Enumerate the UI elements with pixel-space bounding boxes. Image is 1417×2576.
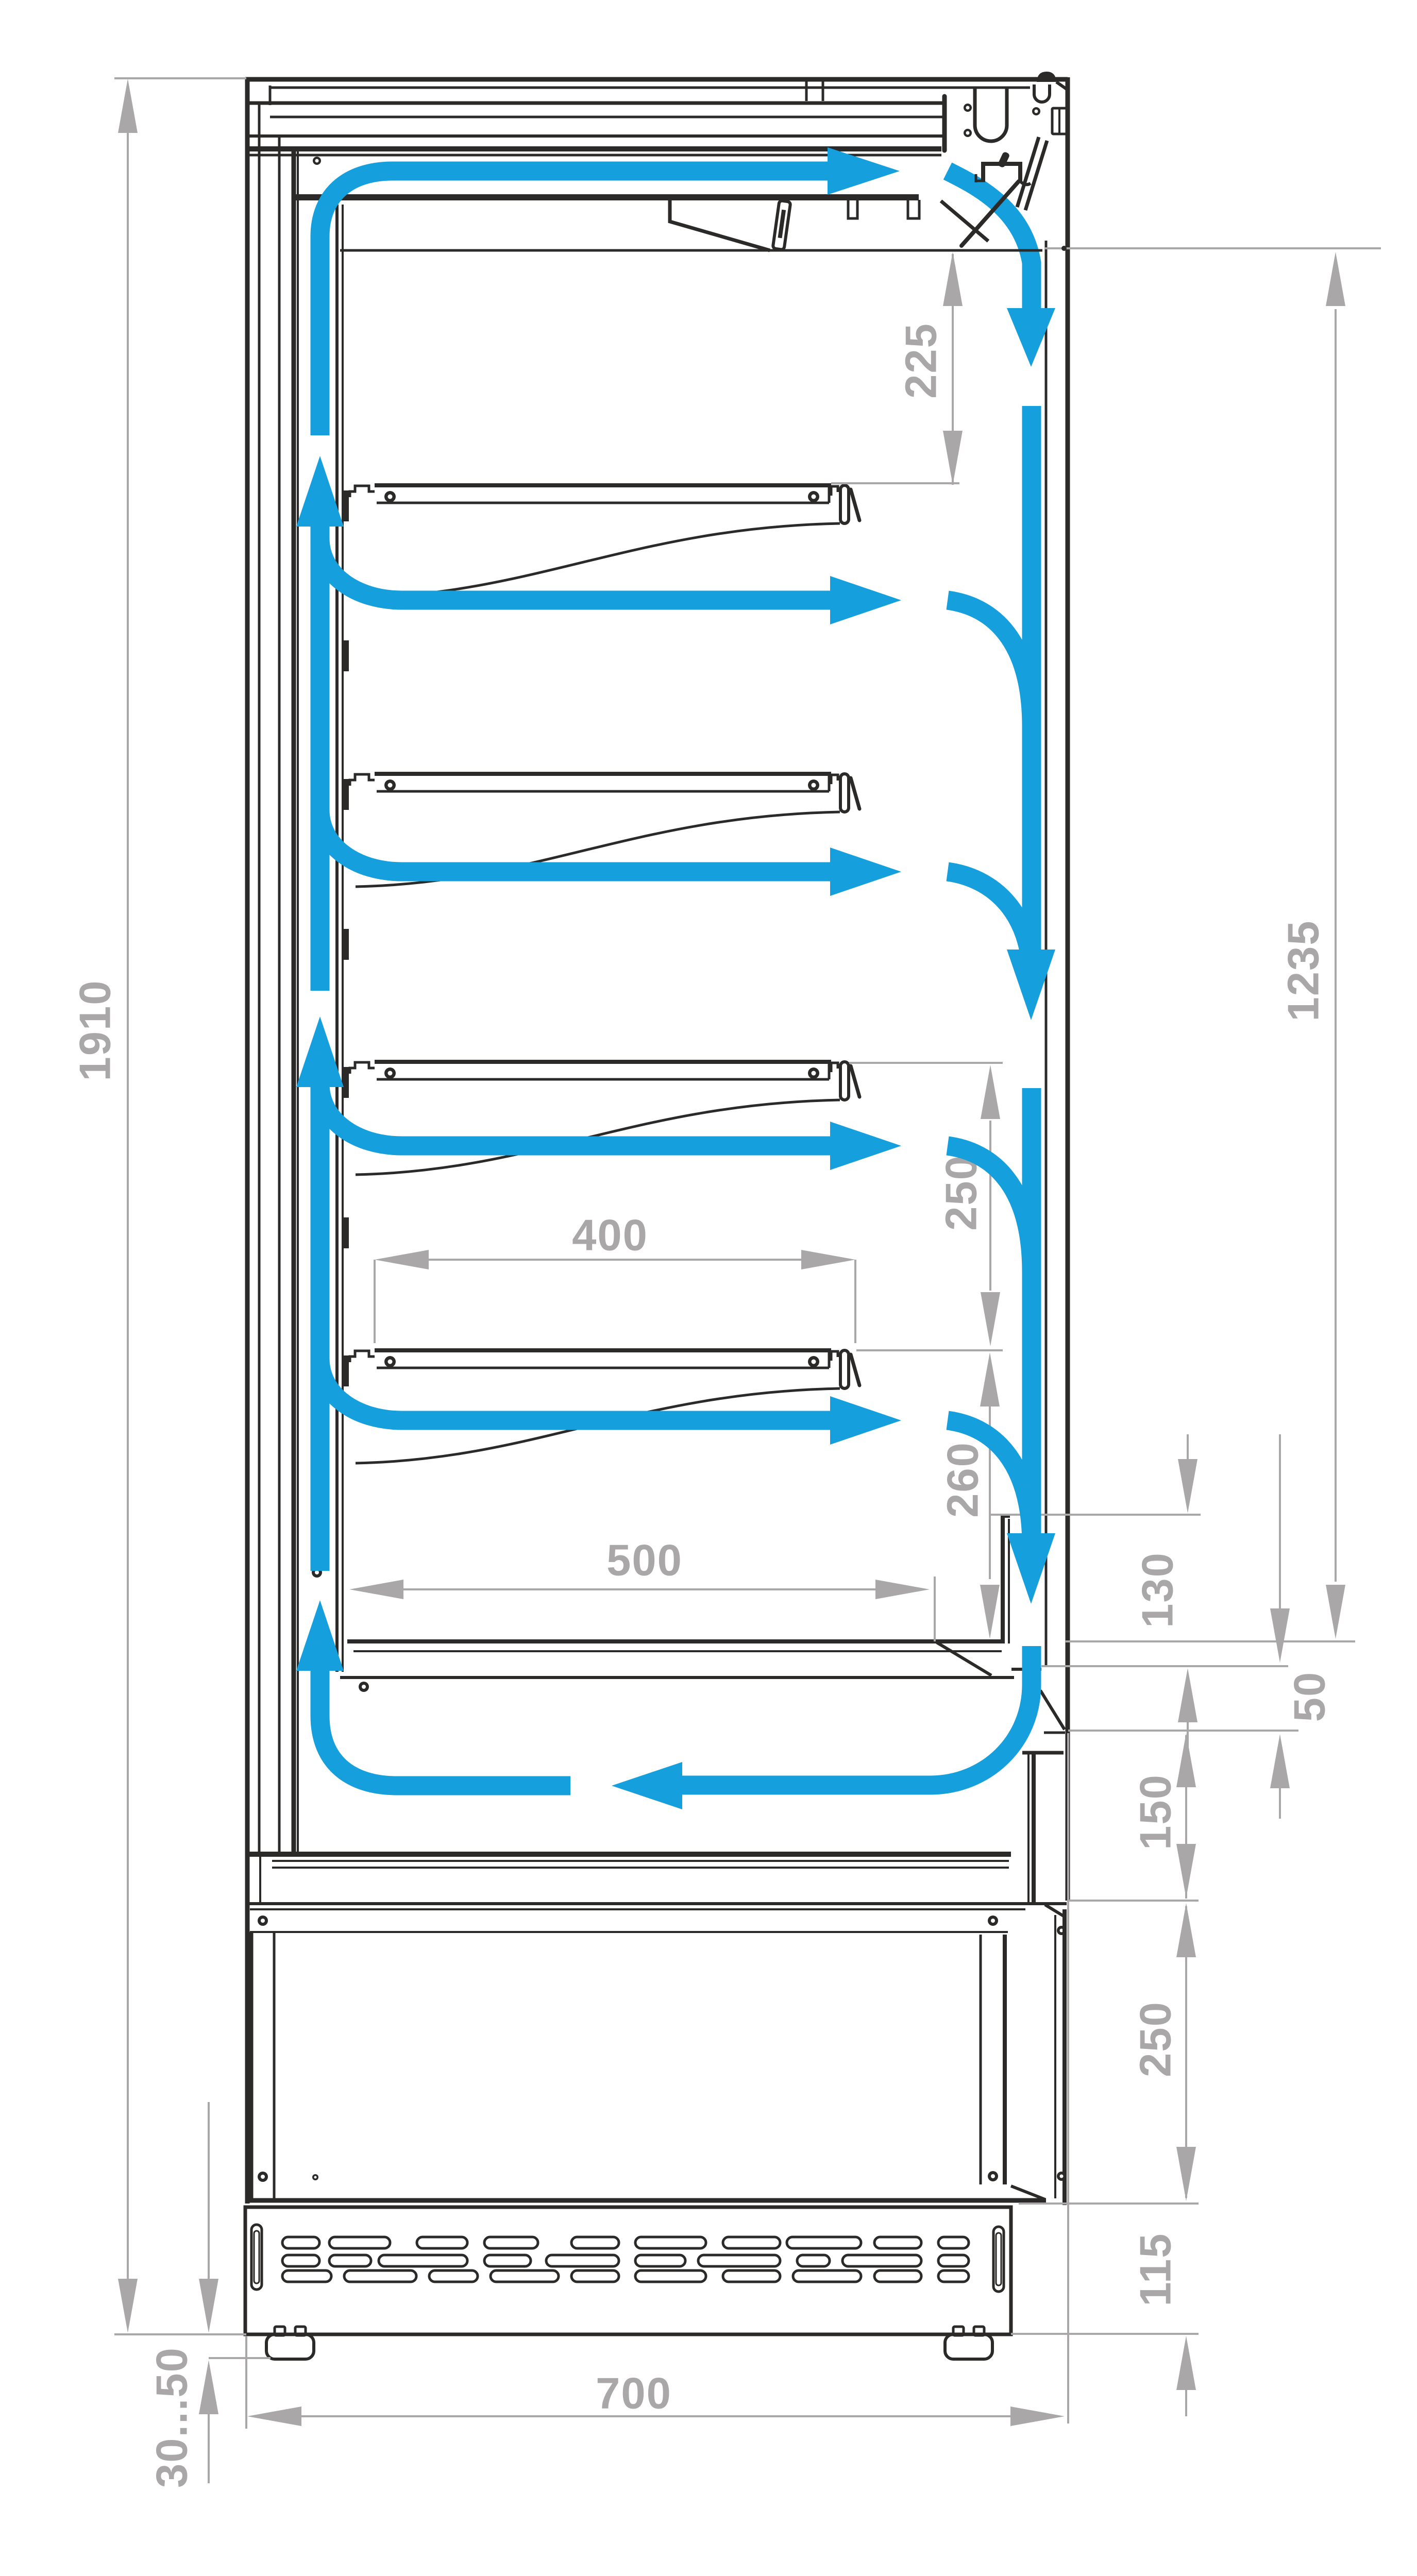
svg-text:1235: 1235 [1279, 920, 1328, 1021]
svg-text:225: 225 [897, 323, 946, 399]
svg-text:115: 115 [1132, 2232, 1180, 2306]
svg-text:130: 130 [1134, 1552, 1183, 1628]
svg-text:30...50: 30...50 [148, 2347, 197, 2488]
svg-text:1910: 1910 [71, 979, 120, 1081]
svg-text:250: 250 [1132, 2001, 1180, 2077]
svg-text:400: 400 [572, 1211, 648, 1260]
svg-text:500: 500 [606, 1536, 683, 1585]
svg-text:150: 150 [1132, 1774, 1180, 1850]
svg-text:50: 50 [1286, 1671, 1335, 1722]
svg-text:700: 700 [596, 2369, 672, 2418]
svg-text:260: 260 [939, 1442, 988, 1518]
